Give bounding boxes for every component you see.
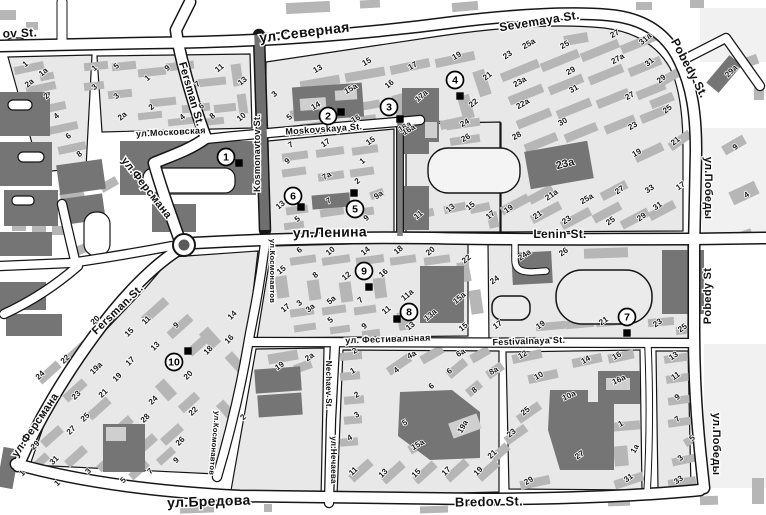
poi-square [396, 115, 403, 122]
building [264, 504, 272, 512]
building [257, 392, 302, 417]
poi-square [456, 92, 463, 99]
courtyard-pill [18, 152, 44, 162]
poi-square [623, 329, 630, 336]
courtyard-pill [8, 100, 32, 110]
building [0, 232, 52, 256]
street-label: ул.Космонавтов [268, 239, 277, 303]
street-label: ул.Бредова [167, 492, 251, 511]
street-label: ул.Победы [702, 157, 714, 220]
poi-number: 5 [352, 204, 358, 216]
poi-square [350, 189, 357, 196]
street-label: ov St. [2, 25, 37, 40]
poi-number: 8 [406, 307, 412, 319]
poi-number: 4 [452, 75, 458, 87]
street-label: ул.Победы [710, 413, 722, 476]
poi-number: 6 [290, 191, 296, 203]
street-label: ул.Ленина [293, 223, 367, 240]
building [6, 314, 62, 336]
small-court [492, 296, 530, 320]
poi-number: 7 [624, 312, 630, 324]
building [404, 186, 429, 230]
poi-square [393, 315, 400, 322]
building [56, 159, 106, 195]
building [420, 506, 448, 514]
street-label: Kosmonavtov St. [252, 114, 262, 192]
poi-square [297, 203, 304, 210]
building [4, 190, 58, 226]
street-label: ул.Нечаева [329, 436, 338, 484]
poi-number: 1 [223, 152, 229, 164]
poi-square [184, 347, 191, 354]
poi-number: 10 [168, 357, 180, 369]
poi-number: 3 [386, 102, 392, 114]
building [613, 445, 629, 466]
street-label: Bredov St. [455, 493, 523, 509]
building-inner [106, 427, 126, 441]
poi-number: 9 [361, 266, 367, 278]
poi-number: 2 [325, 111, 331, 123]
building [690, 0, 704, 8]
building-inner [425, 122, 437, 138]
pond [428, 148, 520, 193]
map-canvas: 11a2a2468153319722a648101113313151719211… [0, 0, 766, 515]
building [636, 2, 652, 10]
building [700, 496, 718, 506]
roundabout [173, 234, 195, 256]
building [286, 1, 331, 14]
poi-square [337, 108, 344, 115]
building [0, 10, 16, 20]
courtyard-pill [84, 212, 110, 256]
building [360, 0, 380, 9]
courtyard-pill [12, 196, 34, 205]
street-label: Pobedy St [702, 268, 714, 325]
poi-square [365, 283, 372, 290]
building [0, 92, 50, 136]
building [752, 478, 764, 504]
street-label: Lenin St. [533, 227, 586, 241]
building [584, 247, 628, 259]
city-map: 11a2a2468153319722a648101113313151719211… [0, 0, 766, 515]
poi-square [235, 159, 242, 166]
street-label: Nechaev St. [324, 361, 333, 410]
building [0, 142, 52, 186]
